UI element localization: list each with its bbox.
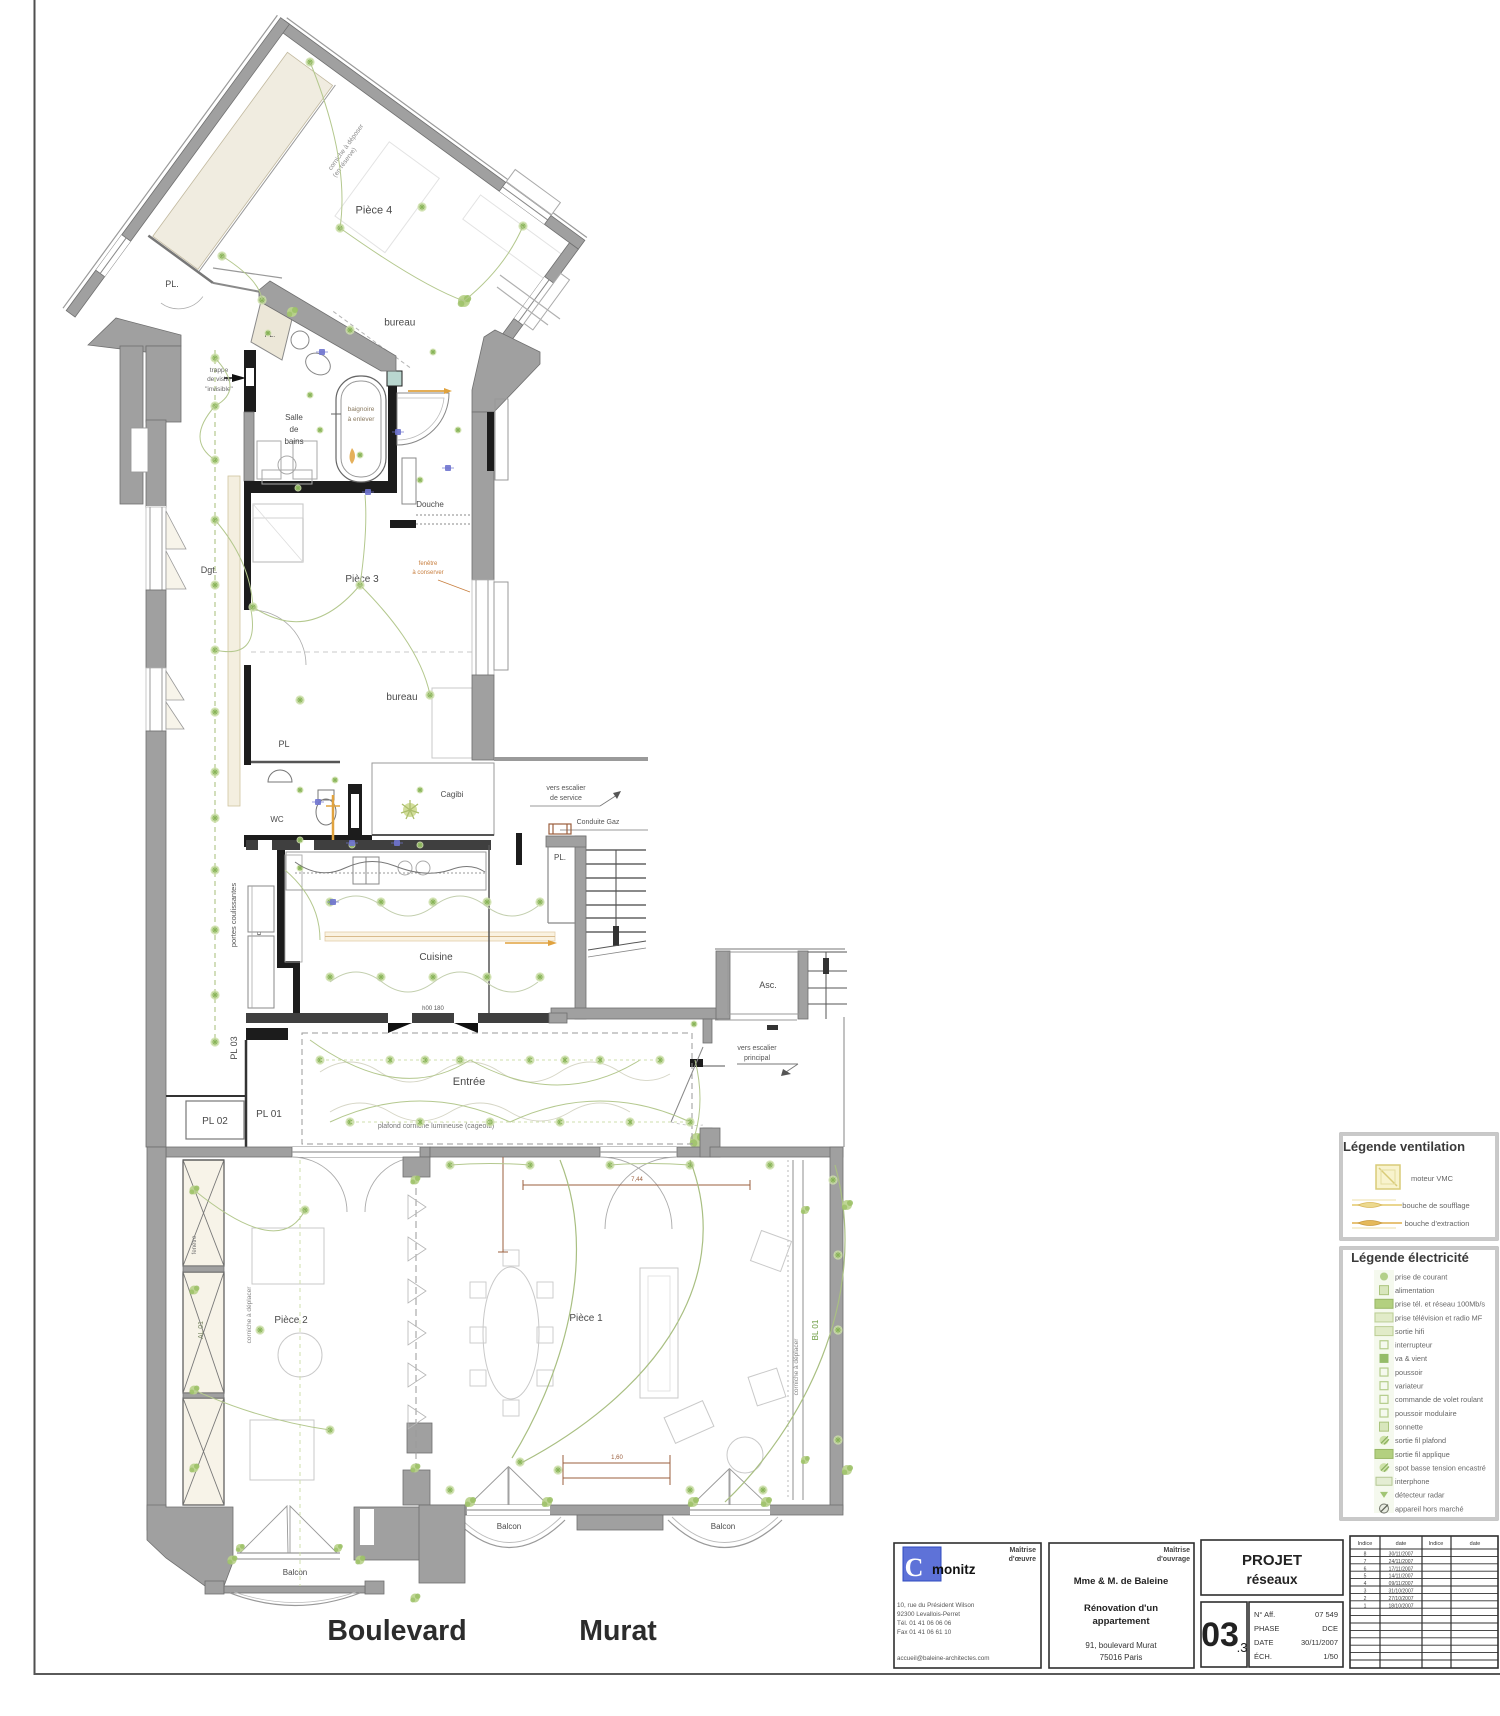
svg-text:date: date (1470, 1541, 1481, 1547)
svg-text:Indice: Indice (1358, 1541, 1373, 1547)
svg-text:03: 03 (1201, 1616, 1239, 1654)
svg-text:1/50: 1/50 (1323, 1652, 1338, 1661)
svg-text:Fax 01 41 06 61 10: Fax 01 41 06 61 10 (897, 1629, 952, 1636)
svg-text:6: 6 (1364, 1566, 1367, 1572)
svg-text:10, rue du Président Wilson: 10, rue du Président Wilson (897, 1602, 975, 1609)
svg-text:5: 5 (1364, 1574, 1367, 1580)
svg-text:PROJET: PROJET (1242, 1552, 1302, 1569)
svg-text:18/10/2007: 18/10/2007 (1388, 1603, 1413, 1609)
svg-text:Balcon: Balcon (497, 1522, 521, 1531)
svg-text:Maîtrise: Maîtrise (1010, 1547, 1037, 1554)
svg-text:92300 Levallois-Perret: 92300 Levallois-Perret (897, 1611, 960, 1618)
svg-text:07 549: 07 549 (1315, 1610, 1338, 1619)
svg-text:Asc.: Asc. (759, 980, 777, 990)
svg-text:09/11/2007: 09/11/2007 (1389, 1581, 1414, 1587)
svg-text:prise télévision et radio MF: prise télévision et radio MF (1395, 1313, 1483, 1322)
svg-text:bureau: bureau (384, 318, 415, 329)
svg-text:Maîtrise: Maîtrise (1164, 1547, 1191, 1554)
svg-text:poussoir: poussoir (1395, 1368, 1423, 1377)
svg-text:interrupteur: interrupteur (1395, 1341, 1433, 1350)
svg-text:détecteur radar: détecteur radar (1395, 1491, 1445, 1500)
svg-text:75016 Paris: 75016 Paris (1100, 1653, 1143, 1662)
svg-text:baignoire: baignoire (348, 406, 375, 413)
svg-text:Pièce 4: Pièce 4 (356, 205, 393, 217)
svg-text:appartement: appartement (1092, 1616, 1150, 1627)
svg-text:2: 2 (1364, 1596, 1367, 1602)
svg-text:h00 180: h00 180 (422, 1006, 444, 1012)
svg-text:30/11/2007: 30/11/2007 (1389, 1552, 1414, 1558)
svg-text:à enlever: à enlever (348, 416, 376, 423)
svg-text:sortie fil plafond: sortie fil plafond (1395, 1436, 1446, 1445)
svg-text:.3: .3 (1237, 1640, 1248, 1655)
svg-text:Légende ventilation: Légende ventilation (1343, 1139, 1465, 1154)
svg-text:variateur: variateur (1395, 1382, 1424, 1391)
svg-text:WC: WC (270, 815, 284, 824)
svg-text:date: date (1396, 1541, 1407, 1547)
svg-text:à conserver: à conserver (412, 570, 443, 576)
svg-text:prise tél. et réseau 100Mb/s: prise tél. et réseau 100Mb/s (1395, 1300, 1485, 1309)
svg-text:moteur VMC: moteur VMC (1411, 1174, 1454, 1183)
svg-text:DATE: DATE (1254, 1638, 1273, 1647)
svg-text:Balcon: Balcon (283, 1568, 307, 1577)
svg-text:PL 02: PL 02 (202, 1116, 228, 1127)
svg-text:PHASE: PHASE (1254, 1624, 1279, 1633)
svg-text:1,60: 1,60 (611, 1455, 623, 1461)
svg-text:N° Aff.: N° Aff. (1254, 1610, 1275, 1619)
svg-text:7: 7 (1364, 1559, 1367, 1565)
svg-text:31/10/2007: 31/10/2007 (1388, 1589, 1413, 1595)
svg-text:Murat: Murat (579, 1615, 657, 1647)
svg-text:vers escalier: vers escalier (546, 785, 586, 792)
svg-text:prise de courant: prise de courant (1395, 1272, 1447, 1281)
svg-text:3: 3 (1364, 1589, 1367, 1595)
svg-text:corniche à déplacer: corniche à déplacer (793, 1338, 800, 1396)
svg-text:fenêtre: fenêtre (192, 1235, 198, 1254)
svg-text:Salle: Salle (285, 413, 303, 422)
svg-text:PL.: PL. (554, 853, 566, 862)
svg-text:PL.: PL. (165, 279, 179, 289)
svg-text:alimentation: alimentation (1395, 1286, 1434, 1295)
svg-text:sortie fil applique: sortie fil applique (1395, 1450, 1450, 1459)
svg-text:portes coulissantes: portes coulissantes (229, 883, 238, 947)
svg-text:plafond corniche lumineuse (ca: plafond corniche lumineuse (cageotti) (378, 1123, 494, 1130)
svg-text:bains: bains (284, 437, 303, 446)
svg-text:ÉCH.: ÉCH. (1254, 1652, 1272, 1661)
svg-text:Mme & M. de Baleine: Mme & M. de Baleine (1074, 1576, 1169, 1587)
svg-text:Pièce 1: Pièce 1 (569, 1313, 603, 1324)
svg-text:appareil hors marché: appareil hors marché (1395, 1504, 1464, 1513)
svg-text:Boulevard: Boulevard (327, 1615, 466, 1647)
svg-text:AL 01: AL 01 (198, 1321, 205, 1339)
svg-text:sortie hifi: sortie hifi (1395, 1327, 1425, 1336)
svg-text:accueil@baleine-architectes.co: accueil@baleine-architectes.com (897, 1655, 990, 1662)
svg-text:PL 03: PL 03 (229, 1036, 239, 1059)
svg-text:réseaux: réseaux (1246, 1572, 1298, 1587)
svg-text:14/11/2007: 14/11/2007 (1389, 1574, 1414, 1580)
svg-text:Pièce 2: Pièce 2 (274, 1315, 308, 1326)
svg-text:17/11/2007: 17/11/2007 (1389, 1566, 1414, 1572)
svg-text:4: 4 (1364, 1581, 1367, 1587)
svg-text:Indice: Indice (1429, 1541, 1444, 1547)
svg-text:interphone: interphone (1395, 1477, 1430, 1486)
svg-text:Entrée: Entrée (453, 1076, 485, 1088)
svg-text:va & vient: va & vient (1395, 1354, 1427, 1363)
svg-text:Légende électricité: Légende électricité (1351, 1250, 1469, 1265)
svg-text:Rénovation d'un: Rénovation d'un (1084, 1603, 1158, 1614)
svg-text:PL 01: PL 01 (256, 1109, 282, 1120)
svg-text:Conduite Gaz: Conduite Gaz (577, 819, 620, 826)
svg-text:bouche de soufflage: bouche de soufflage (1402, 1201, 1469, 1210)
svg-text:C: C (905, 1553, 924, 1582)
svg-text:91, boulevard Murat: 91, boulevard Murat (1085, 1641, 1157, 1650)
svg-text:fenêtre: fenêtre (419, 561, 438, 567)
svg-text:corniche à déplacer: corniche à déplacer (246, 1286, 253, 1344)
svg-text:principal: principal (744, 1055, 771, 1062)
svg-text:Balcon: Balcon (711, 1522, 735, 1531)
svg-text:d'ouvrage: d'ouvrage (1157, 1556, 1190, 1563)
svg-text:vers escalier: vers escalier (737, 1045, 777, 1052)
svg-text:Douche: Douche (416, 500, 444, 509)
svg-text:commande de volet roulant: commande de volet roulant (1395, 1395, 1483, 1404)
svg-text:poussoir modulaire: poussoir modulaire (1395, 1409, 1457, 1418)
svg-text:Cuisine: Cuisine (419, 952, 453, 963)
svg-text:BL 01: BL 01 (811, 1319, 820, 1340)
svg-text:sonnette: sonnette (1395, 1422, 1423, 1431)
svg-text:24/11/2007: 24/11/2007 (1389, 1559, 1414, 1565)
svg-text:PL: PL (278, 739, 289, 749)
svg-text:DCE: DCE (1322, 1624, 1338, 1633)
svg-text:spot basse tension encastré: spot basse tension encastré (1395, 1463, 1486, 1472)
svg-text:bouche d'extraction: bouche d'extraction (1405, 1219, 1470, 1228)
svg-text:30/11/2007: 30/11/2007 (1301, 1638, 1338, 1647)
svg-text:d'œuvre: d'œuvre (1009, 1556, 1036, 1563)
svg-text:8: 8 (1364, 1552, 1367, 1558)
svg-text:27/10/2007: 27/10/2007 (1388, 1596, 1413, 1602)
svg-text:Cagibi: Cagibi (441, 790, 464, 799)
svg-text:de service: de service (550, 795, 582, 802)
svg-text:de: de (290, 425, 299, 434)
svg-text:7,44: 7,44 (631, 1177, 643, 1183)
svg-text:Tél. 01 41 06 06 06: Tél. 01 41 06 06 06 (897, 1620, 952, 1627)
svg-text:monitz: monitz (932, 1562, 976, 1577)
svg-text:1: 1 (1364, 1603, 1367, 1609)
svg-text:bureau: bureau (386, 692, 417, 703)
